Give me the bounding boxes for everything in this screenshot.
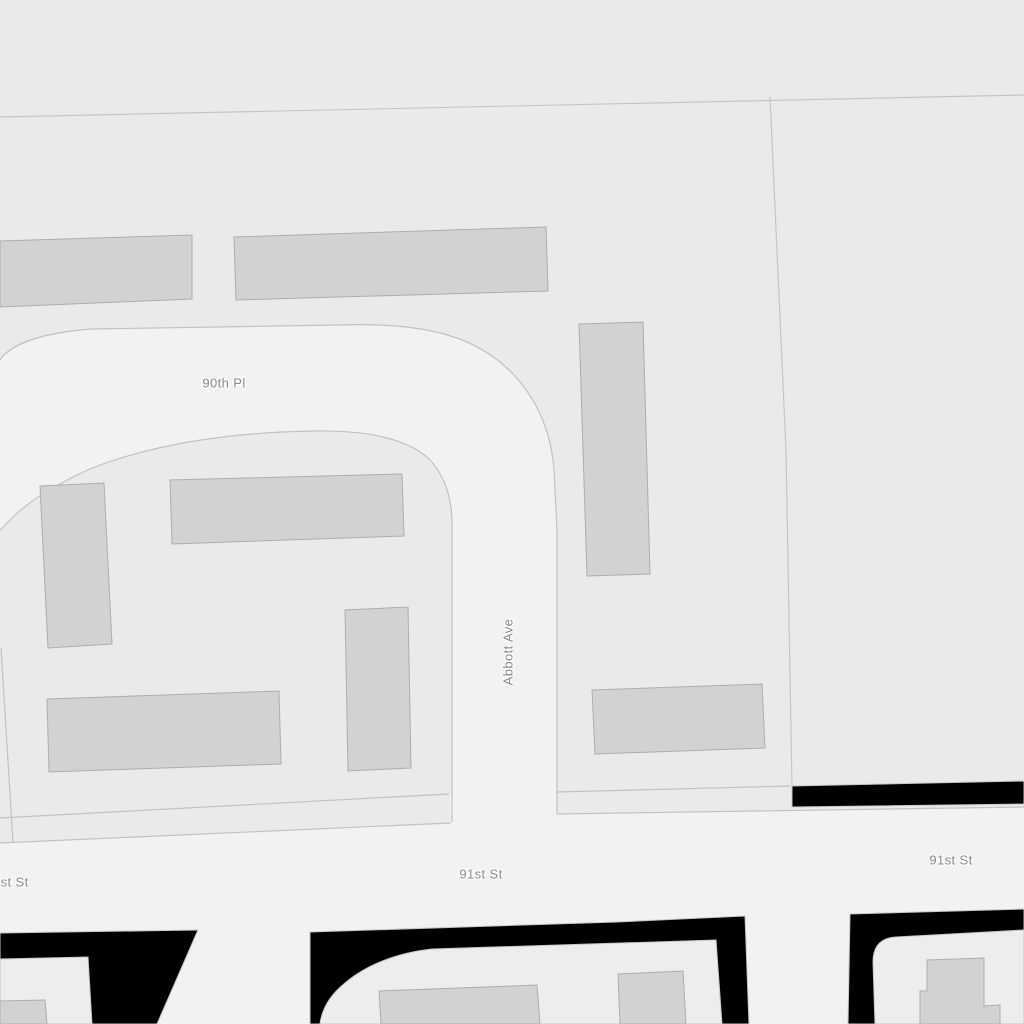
street-label-91st-st-center: 91st St (459, 867, 502, 882)
south-block-middle (310, 916, 749, 1024)
building (592, 684, 765, 754)
street-label-91st-st-right: 91st St (929, 853, 972, 868)
building (379, 985, 540, 1024)
building (618, 971, 686, 1024)
building (579, 322, 650, 576)
building (40, 483, 112, 648)
street-label-91st-st-left: 91st St (0, 875, 29, 890)
south-block-right (848, 909, 1024, 1024)
building (170, 474, 404, 544)
building (0, 235, 192, 307)
map-viewport[interactable]: 90th Pl Abbott Ave 91st St 91st St 91st … (0, 0, 1024, 1024)
street-label-abbott-ave: Abbott Ave (501, 619, 516, 686)
building (345, 607, 411, 771)
nodata-strip-east (792, 781, 1024, 807)
building (0, 1000, 47, 1024)
street-label-90th-pl: 90th Pl (202, 376, 245, 391)
building (47, 691, 281, 772)
building (234, 227, 548, 300)
map-canvas (0, 0, 1024, 1024)
